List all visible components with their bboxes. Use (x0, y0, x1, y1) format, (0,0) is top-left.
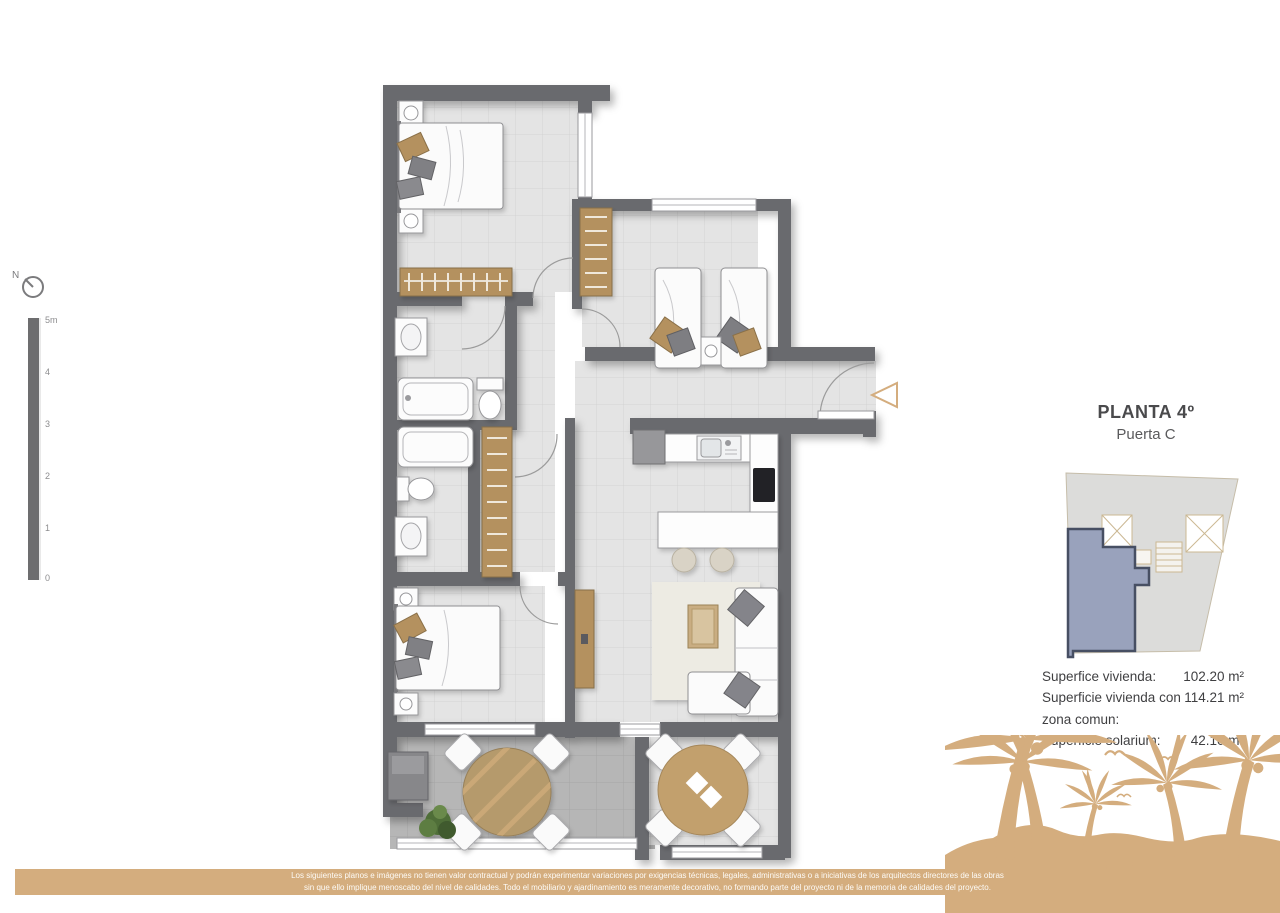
stool-2 (710, 548, 734, 572)
kitchen-island (658, 512, 778, 548)
kitchen-sink (697, 436, 741, 460)
twin-bed-1 (650, 268, 701, 368)
coffee-table (688, 605, 718, 648)
key-plan-patio-1 (1102, 515, 1132, 547)
bird-icon (1105, 751, 1125, 755)
grill-box (388, 752, 428, 800)
cooktop (753, 468, 775, 502)
floor-plan (380, 80, 900, 880)
scale-bar-rule (28, 318, 41, 580)
bathroom2-toilet (397, 477, 434, 501)
compass-icon (20, 274, 46, 300)
north-compass: N (12, 270, 52, 304)
bathroom2-bathtub (398, 427, 473, 467)
room-entry-corridor (575, 361, 876, 418)
scale-bar: 5m 4 3 2 1 0 (28, 318, 68, 580)
disclaimer-band: Los siguientes planos e imágenes no tien… (15, 869, 1280, 895)
scale-tick-5m: 5m (45, 315, 58, 325)
bedroom2-wardrobe (580, 208, 612, 296)
title-block: PLANTA 4º Puerta C (1040, 402, 1252, 443)
entrance-door-leaf (818, 411, 874, 419)
surface-row: Superfice vivienda: 102.20 m² (1042, 666, 1244, 687)
window-master (578, 113, 592, 197)
surface-row: Superficie vivienda con zona comun: 114.… (1042, 687, 1244, 730)
corridor-wardrobe (482, 427, 512, 577)
bedroom2-nightstand (701, 337, 721, 365)
page: N 5m 4 3 2 1 0 (0, 0, 1280, 913)
page-title: PLANTA 4º (1040, 402, 1252, 423)
disclaimer-line-2: sin que ello implique menoscabo del nive… (304, 882, 991, 894)
fridge (633, 430, 665, 464)
twin-bed-2 (716, 268, 767, 368)
scale-tick-1: 1 (45, 523, 50, 533)
bathroom1-toilet (477, 378, 503, 419)
bathroom2-sink (395, 517, 427, 556)
scale-tick-2: 2 (45, 471, 50, 481)
north-label: N (12, 270, 19, 281)
window-dining-terrace (672, 847, 762, 858)
bird-icon (1117, 794, 1131, 797)
page-subtitle: Puerta C (1040, 426, 1252, 443)
scale-tick-3: 3 (45, 419, 50, 429)
terrace-railing (397, 838, 637, 849)
bathroom1-bathtub (398, 378, 473, 420)
scale-tick-0: 0 (45, 573, 50, 583)
terrace-door-glazing (620, 724, 660, 735)
tv-unit (575, 590, 594, 688)
dining-set (644, 732, 762, 848)
window-bedroom-2 (652, 199, 756, 211)
bathroom1-sink (395, 318, 427, 356)
stool-1 (672, 548, 696, 572)
key-plan-patio-2 (1186, 515, 1223, 552)
window-bedroom-3 (425, 724, 535, 735)
key-plan (1053, 458, 1245, 664)
disclaimer-line-1: Los siguientes planos e imágenes no tien… (291, 870, 1004, 882)
master-wardrobe (400, 268, 512, 296)
scale-tick-4: 4 (45, 367, 50, 377)
